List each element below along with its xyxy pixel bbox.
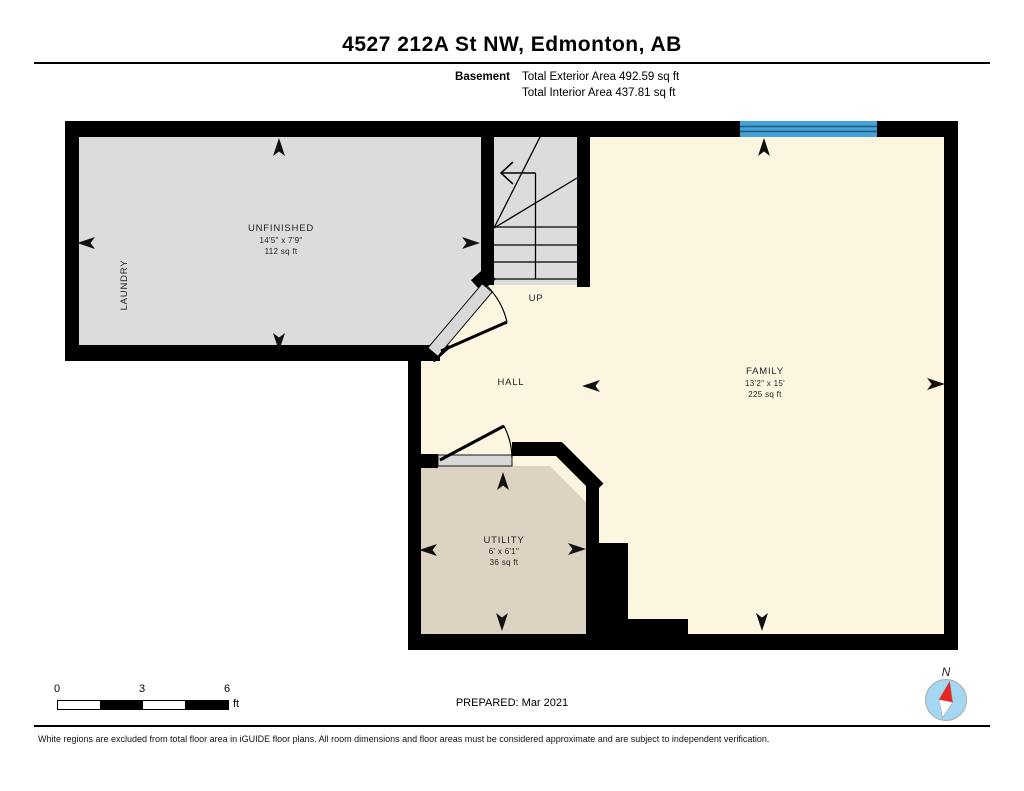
disclaimer-text: White regions are excluded from total fl… [38,734,998,744]
scale-tick-3: 3 [132,683,152,695]
wall-stair-right [577,137,590,287]
compass-north-label: N [942,665,951,679]
wall-step-block-b [628,619,688,639]
wall-left [65,121,79,361]
floor-plan-page: 4527 212A St NW, Edmonton, AB Basement T… [0,0,1024,791]
room-dims-utility: 6' x 6'1" [489,547,519,556]
room-label-utility: UTILITY [484,535,525,546]
room-label-laundry: LAUNDRY [119,260,130,311]
room-label-unfinished: UNFINISHED [248,223,314,234]
wall-stair-left [481,137,494,285]
room-label-hall: HALL [498,377,525,388]
wall-utility-top-left [421,454,438,468]
room-area-utility: 36 sq ft [490,558,519,567]
prepared-date: PREPARED: Mar 2021 [0,697,1024,709]
room-label-family: FAMILY [746,366,784,377]
scale-tick-6: 6 [217,683,237,695]
room-area-unfinished: 112 sq ft [265,247,298,256]
wall-hall-left [408,357,421,639]
room-dims-family: 13'2" x 15' [745,379,785,388]
stairs-up-label: UP [529,293,544,304]
footer-divider [34,725,990,727]
wall-right [944,121,958,650]
floor-plan-drawing: UNFINISHED 14'5" x 7'9" 112 sq ft LAUNDR… [0,0,1024,791]
compass-icon: N [919,662,975,724]
room-area-family: 225 sq ft [748,390,782,399]
wall-utility-right [586,484,599,546]
scale-tick-0: 0 [47,683,67,695]
room-dims-unfinished: 14'5" x 7'9" [259,236,302,245]
window [740,121,877,137]
wall-unfinished-bottom [65,345,440,361]
wall-step-block-a [586,543,628,638]
